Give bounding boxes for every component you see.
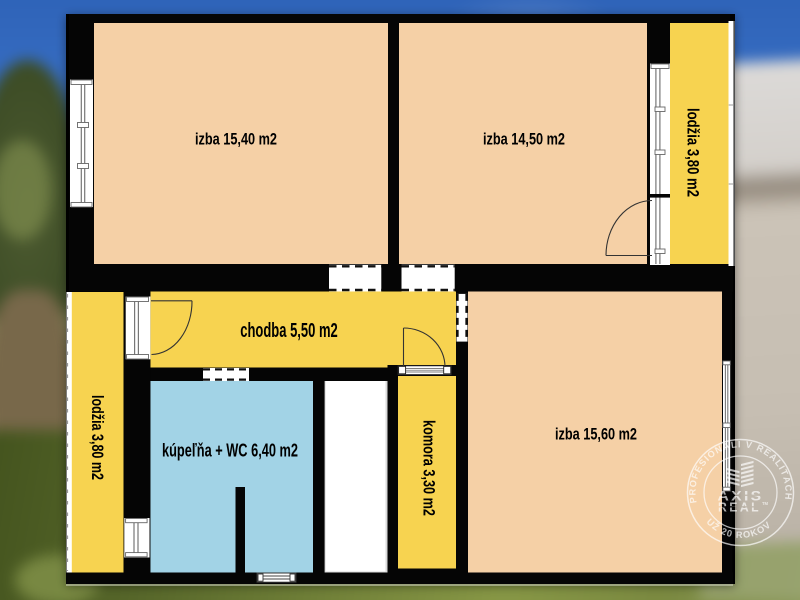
svg-text:TM: TM [762, 501, 769, 506]
svg-text:REAL: REAL [718, 501, 761, 515]
